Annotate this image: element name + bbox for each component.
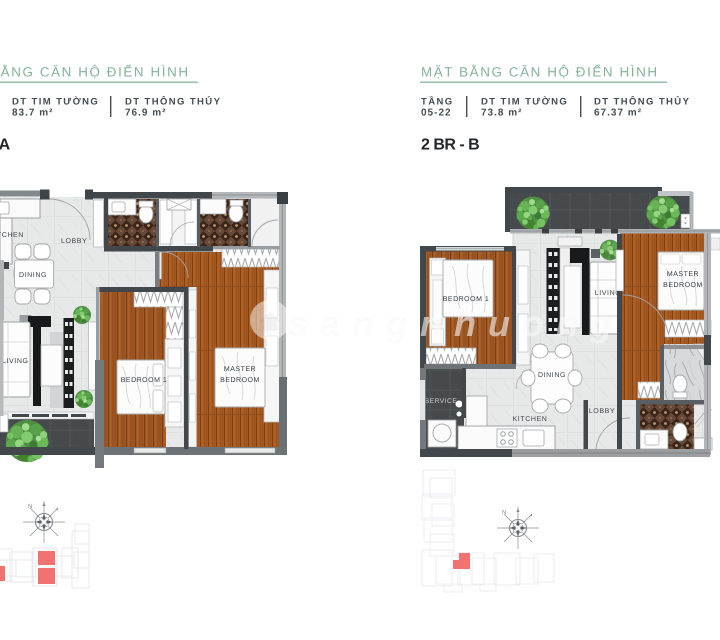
svg-text:73.8 m²: 73.8 m² bbox=[481, 108, 522, 119]
svg-text:2 BR - A: 2 BR - A bbox=[0, 137, 11, 154]
svg-text:KITCHEN: KITCHEN bbox=[0, 232, 24, 239]
svg-text:DT TIM TƯỜNG: DT TIM TƯỜNG bbox=[12, 96, 99, 108]
svg-text:MASTER: MASTER bbox=[667, 271, 699, 278]
svg-text:BEDROOM: BEDROOM bbox=[220, 377, 260, 384]
svg-text:SERVICE: SERVICE bbox=[425, 398, 458, 405]
svg-text:05-22: 05-22 bbox=[421, 108, 452, 119]
svg-text:LIVING: LIVING bbox=[2, 358, 29, 365]
svg-text:DT TIM TƯỜNG: DT TIM TƯỜNG bbox=[481, 96, 568, 108]
svg-text:DINING: DINING bbox=[538, 372, 566, 379]
svg-text:TẦNG: TẦNG bbox=[421, 96, 454, 108]
svg-text:LOBBY: LOBBY bbox=[61, 238, 87, 245]
svg-text:BEDROOM 1: BEDROOM 1 bbox=[443, 296, 490, 303]
svg-text:MẶT BẰNG CĂN HỘ ĐIỂN HÌNH: MẶT BẰNG CĂN HỘ ĐIỂN HÌNH bbox=[421, 65, 659, 80]
svg-text:N: N bbox=[28, 503, 32, 510]
svg-text:2 BR - B: 2 BR - B bbox=[421, 137, 479, 154]
svg-text:N: N bbox=[502, 509, 506, 516]
svg-text:DT THÔNG THỦY: DT THÔNG THỦY bbox=[125, 96, 221, 108]
svg-text:BEDROOM: BEDROOM bbox=[663, 282, 703, 289]
svg-text:sangnhuong: sangnhuong bbox=[288, 303, 624, 344]
svg-text:83.7 m²: 83.7 m² bbox=[12, 108, 53, 119]
svg-text:DINING: DINING bbox=[19, 272, 47, 279]
svg-text:BEDROOM 1: BEDROOM 1 bbox=[121, 377, 168, 384]
svg-text:67.37 m²: 67.37 m² bbox=[594, 108, 642, 119]
svg-text:MASTER: MASTER bbox=[224, 366, 256, 373]
svg-text:DT THÔNG THỦY: DT THÔNG THỦY bbox=[594, 96, 690, 108]
svg-text:MẶT BẰNG CĂN HỘ ĐIỂN HÌNH: MẶT BẰNG CĂN HỘ ĐIỂN HÌNH bbox=[0, 65, 190, 80]
svg-text:LOBBY: LOBBY bbox=[589, 408, 615, 415]
svg-text:KITCHEN: KITCHEN bbox=[513, 416, 548, 423]
svg-text:76.9 m²: 76.9 m² bbox=[125, 108, 166, 119]
